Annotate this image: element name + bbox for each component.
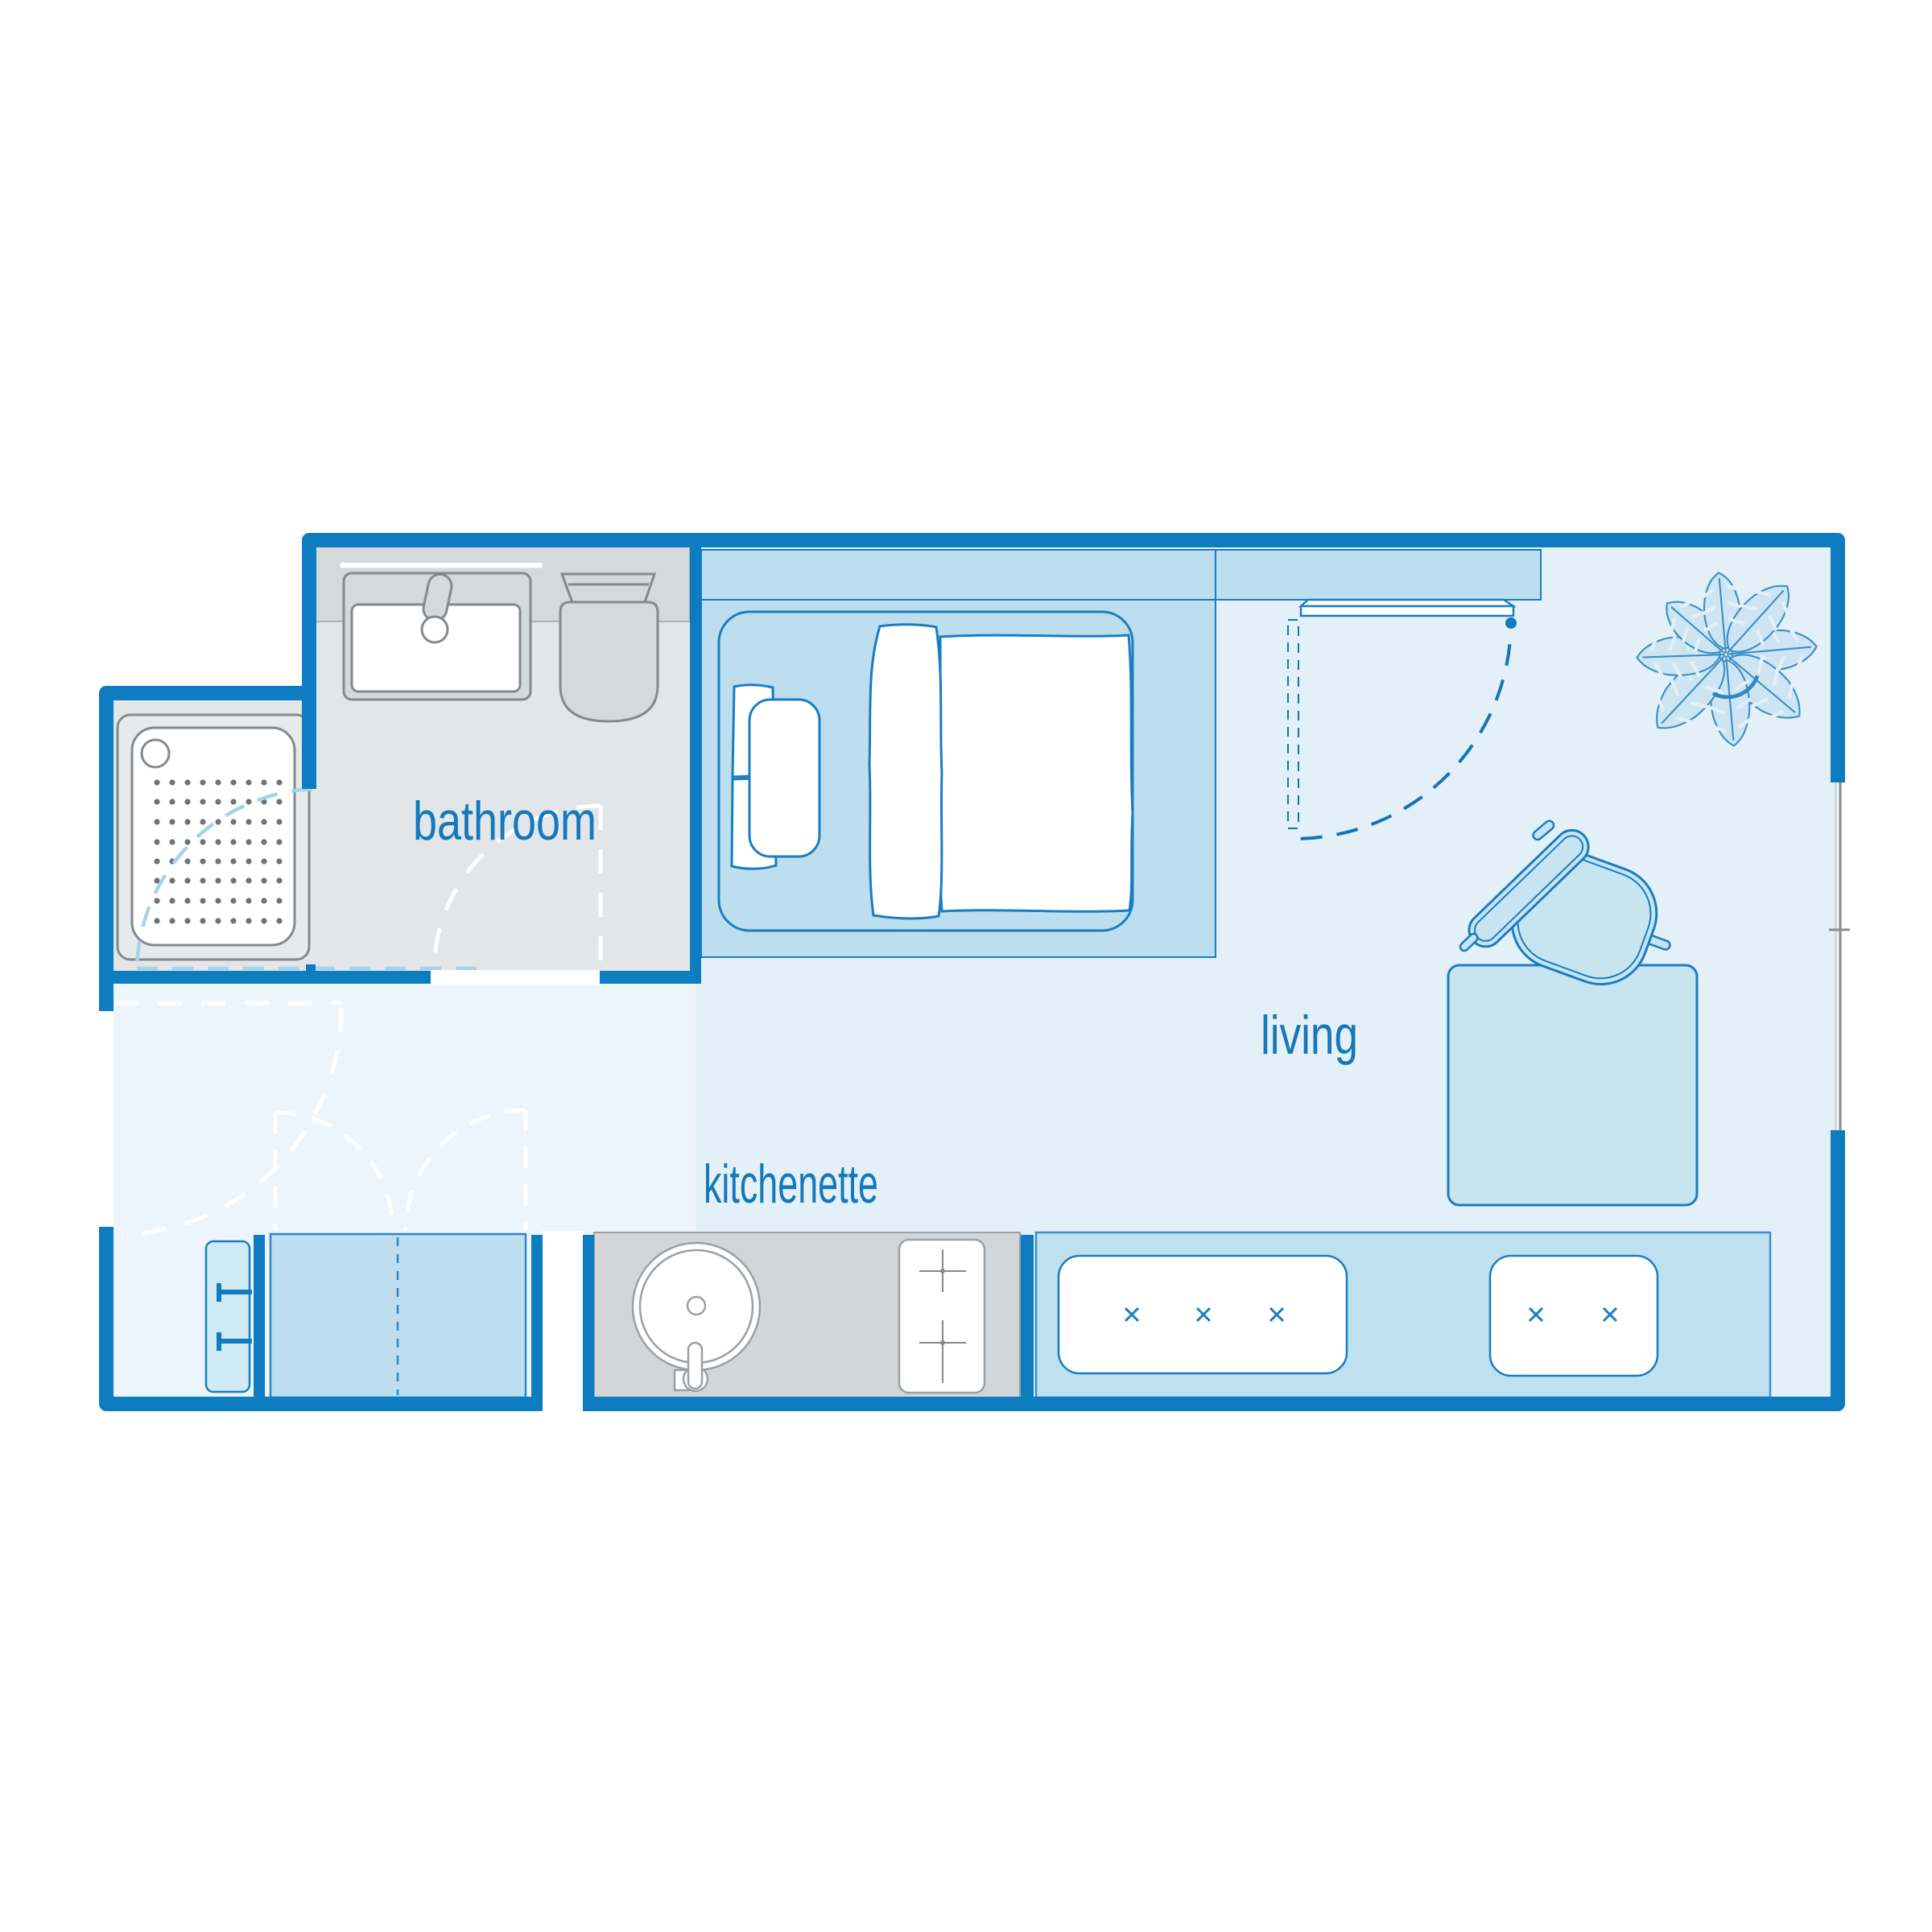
svg-text:kitchenette: kitchenette [704, 1154, 878, 1215]
svg-text:bathroom: bathroom [413, 791, 597, 852]
svg-text:living: living [1261, 1005, 1358, 1066]
